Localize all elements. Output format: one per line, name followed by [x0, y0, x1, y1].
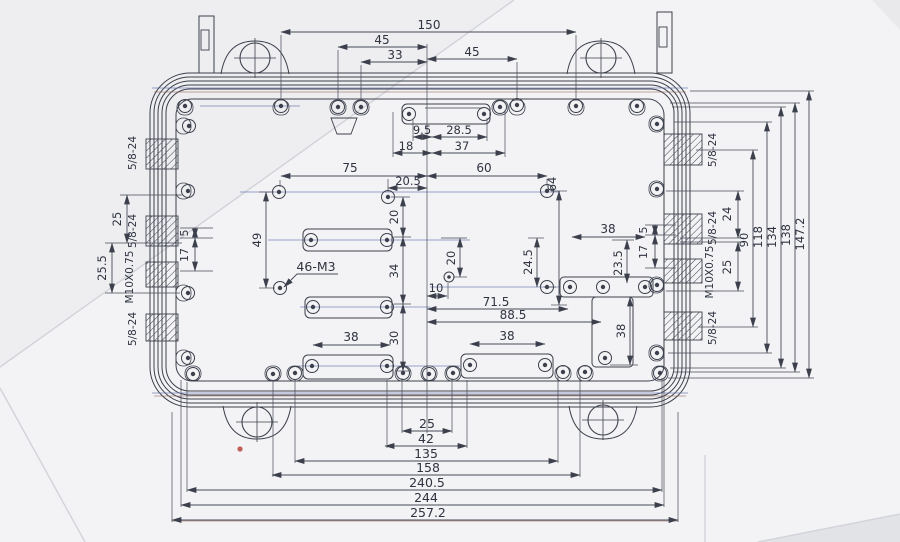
screw-hole-center: [187, 124, 191, 128]
dim-label-5_8_24-49: 5/8-24: [707, 311, 719, 345]
dim-label-42-19: 42: [418, 431, 434, 446]
screw-hole-center: [191, 372, 195, 376]
screw-hole-center: [385, 238, 389, 242]
dim-label-150-0: 150: [418, 18, 441, 32]
threaded-bushing-hatch: [664, 214, 702, 244]
screw-hole-center: [655, 283, 659, 287]
dim-label-25-48: 25: [720, 260, 734, 275]
screw-hole-center: [277, 190, 281, 194]
screw-hole-center: [279, 104, 283, 108]
dim-label-38-16: 38: [343, 330, 358, 344]
dim-label-88_5-14: 88.5: [500, 308, 527, 322]
threaded-bushing-hatch: [664, 259, 702, 283]
dim-label-37-7: 37: [455, 139, 470, 153]
dim-label-158-21: 158: [416, 460, 440, 475]
screw-hole-center: [603, 356, 607, 360]
center-hole-dot: [447, 275, 451, 279]
dim-label-240_5-22: 240.5: [409, 475, 445, 490]
screw-hole-center: [451, 371, 455, 375]
dim-label-18-6: 18: [399, 139, 414, 153]
dim-label-118-51: 118: [751, 226, 765, 248]
screw-hole-center: [385, 364, 389, 368]
screw-hole-center: [543, 363, 547, 367]
screw-hole-center: [401, 371, 405, 375]
screw-hole-center: [407, 112, 411, 116]
dim-label-24_5-31: 24.5: [521, 249, 535, 275]
dim-label-46_M3-11: 46-M3: [296, 259, 335, 274]
dim-label-23_5-32: 23.5: [611, 250, 625, 276]
dim-label-75-8: 75: [342, 161, 357, 175]
dim-label-25-18: 25: [419, 416, 435, 431]
dim-label-24-43: 24: [720, 207, 734, 222]
threaded-bushing-hatch: [664, 134, 702, 165]
screw-hole-center: [293, 371, 297, 375]
screw-hole-center: [186, 189, 190, 193]
dim-label-5-45: 5: [637, 227, 650, 234]
dim-label-134-52: 134: [765, 226, 779, 248]
dim-label-9_5-4: 9.5: [413, 123, 431, 137]
dim-label-5_8_24-41: 5/8-24: [127, 312, 139, 346]
screw-hole-center: [658, 371, 662, 375]
screw-hole-center: [498, 105, 502, 109]
technical-drawing: 1504533459.528.51837756020.546-M31071.58…: [0, 0, 900, 542]
screw-hole-center: [601, 285, 605, 289]
screw-hole-center: [427, 372, 431, 376]
dim-label-30-29: 30: [387, 331, 401, 346]
screw-hole-center: [468, 363, 472, 367]
dim-label-244-23: 244: [414, 490, 438, 505]
dim-label-64-25: 64: [545, 177, 559, 192]
dim-label-71_5-13: 71.5: [483, 295, 510, 309]
screw-hole-center: [561, 370, 565, 374]
dim-label-45-1: 45: [374, 33, 389, 47]
dim-label-5_8_24-44: 5/8-24: [707, 211, 719, 245]
dim-label-20-27: 20: [387, 210, 401, 225]
screw-hole-center: [359, 105, 363, 109]
scanned-drawing-page: 1504533459.528.51837756020.546-M31071.58…: [0, 0, 900, 542]
dim-label-33-2: 33: [387, 48, 402, 62]
dim-label-38-17: 38: [499, 329, 514, 343]
dim-label-17-37: 17: [178, 248, 191, 262]
dim-label-147_2-54: 147.2: [793, 218, 807, 251]
screw-hole-center: [278, 286, 282, 290]
dim-label-257_2-24: 257.2: [410, 505, 446, 520]
dim-label-25_5-35: 25.5: [95, 255, 109, 281]
screw-hole-center: [336, 105, 340, 109]
screw-hole-center: [186, 291, 190, 295]
dim-label-38-33: 38: [614, 324, 628, 339]
threaded-bushing-hatch: [664, 312, 702, 340]
screw-hole-center: [309, 238, 313, 242]
screw-hole-center: [568, 285, 572, 289]
dim-label-90-50: 90: [737, 233, 751, 248]
dim-label-20-30: 20: [444, 251, 458, 266]
dim-label-60-9: 60: [476, 161, 491, 175]
screw-hole-center: [515, 103, 519, 107]
threaded-bushing-hatch: [146, 216, 178, 246]
threaded-bushing-hatch: [146, 314, 178, 341]
dim-label-M10X0_75-40: M10X0.75: [124, 251, 136, 304]
screw-hole-center: [311, 305, 315, 309]
screw-hole-center: [574, 104, 578, 108]
screw-hole-center: [186, 356, 190, 360]
screw-hole-center: [183, 104, 187, 108]
dim-label-5_8_24-39: 5/8-24: [127, 214, 139, 248]
dim-label-28_5-5: 28.5: [446, 123, 472, 137]
threaded-bushing-hatch: [146, 139, 178, 169]
screw-hole-center: [310, 364, 314, 368]
dim-label-20_5-10: 20.5: [395, 174, 421, 188]
dim-label-38-15: 38: [600, 222, 615, 236]
dim-label-5_8_24-42: 5/8-24: [707, 133, 719, 167]
screw-hole-center: [643, 285, 647, 289]
dim-label-5_8_24-38: 5/8-24: [127, 136, 139, 170]
dim-label-138-53: 138: [779, 224, 793, 246]
dim-label-135-20: 135: [414, 446, 438, 461]
screw-hole-center: [271, 372, 275, 376]
dim-label-M10X0_75-47: M10X0.75: [704, 246, 716, 299]
screw-hole-center: [655, 187, 659, 191]
dim-label-34-28: 34: [387, 264, 401, 279]
screw-hole-center: [482, 112, 486, 116]
screw-hole-center: [635, 104, 639, 108]
dim-label-45-3: 45: [464, 45, 479, 59]
red-ink-dot: [237, 446, 242, 451]
dim-label-10-12: 10: [429, 281, 444, 295]
dim-label-17-46: 17: [637, 245, 650, 259]
threaded-bushing-hatch: [146, 262, 178, 287]
dim-label-5-36: 5: [178, 230, 191, 237]
dim-label-49-26: 49: [250, 233, 264, 248]
screw-hole-center: [583, 370, 587, 374]
screw-hole-center: [655, 351, 659, 355]
screw-hole-center: [386, 195, 390, 199]
screw-hole-center: [655, 122, 659, 126]
dim-label-25-34: 25: [110, 212, 124, 227]
screw-hole-center: [385, 305, 389, 309]
